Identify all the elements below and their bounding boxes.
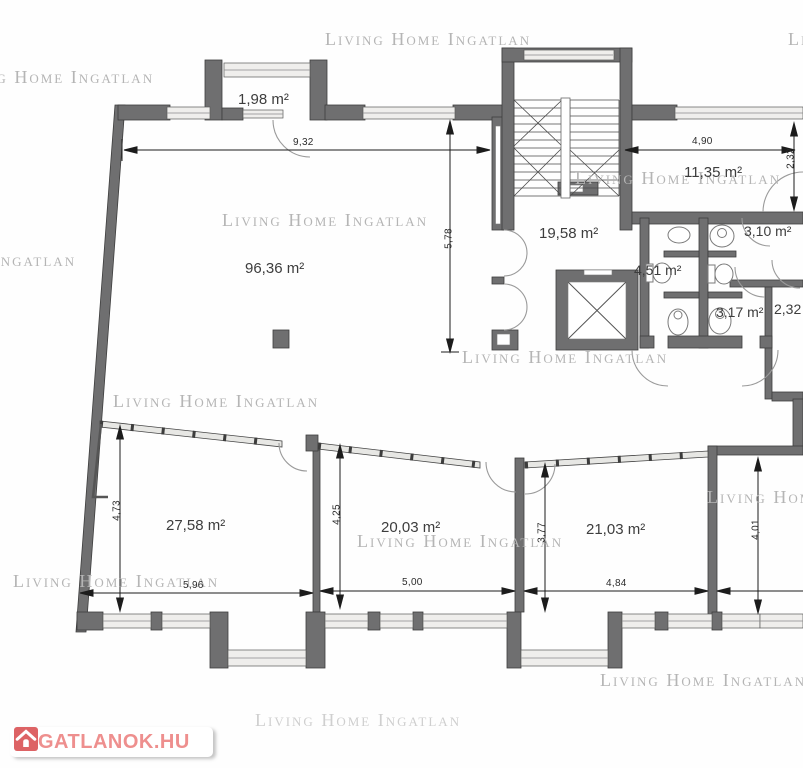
dimension-label-484: 4,84 [606, 578, 627, 589]
watermark: Living Home Ingatlan [0, 67, 154, 88]
bay2-wall-left [507, 612, 521, 668]
watermark: Living Home Ingatlan [462, 347, 668, 368]
column [273, 330, 289, 348]
elevator-door [584, 270, 612, 275]
door-arc-corridor-2 [742, 350, 778, 386]
room-label-room2103: 21,03 m² [586, 521, 645, 538]
room-label-living: 96,36 m² [245, 260, 304, 277]
room-label-hall: 19,58 m² [539, 225, 598, 242]
room-label-room2758: 27,58 m² [166, 517, 225, 534]
dimension-label-596: 5,96 [183, 580, 204, 591]
room-label-wc317: 3,17 m² [716, 304, 763, 320]
bay2-wall-right [608, 612, 622, 668]
floorplan-canvas: Living Home Ingatlan Living Home Ingatla… [0, 0, 803, 768]
watermark: Living Home Ingatlan [255, 710, 461, 731]
room-label-room1135: 11,35 m² [684, 164, 742, 181]
toilet-icon [715, 264, 733, 284]
watermark: Living Home Ingatlan [707, 487, 803, 508]
watermark: Living Home Ingatlan [0, 250, 76, 271]
glass-partitions [93, 421, 708, 497]
balcony-wall-right [310, 60, 327, 120]
room-label-bath451: 4,51 m² [634, 262, 681, 278]
toilet-icon [668, 227, 690, 243]
watermark: Living Home Ingatlan [325, 29, 531, 50]
bay1-wall-left [210, 612, 228, 668]
toilet-icon [718, 229, 727, 238]
logo: INGATLANOK.HU [10, 727, 213, 757]
room-label-wc310: 3,10 m² [744, 223, 791, 239]
stair-handrail [561, 98, 570, 198]
stairwell-wall-right [620, 48, 632, 230]
dimension-label-232: 2,32 [786, 144, 797, 174]
dimension-label-932: 9,32 [293, 137, 314, 148]
watermark: Living Home Ingatlan [788, 29, 803, 50]
bay1-wall-right [306, 612, 325, 668]
watermark: Living Home Ingatlan [575, 168, 781, 189]
watermark: Living Home Ingatlan [222, 210, 428, 231]
door-arc-room2103 [525, 464, 555, 494]
watermark: Living Home Ingatlan [113, 391, 319, 412]
watermark: Living Home Ingatlan [600, 670, 803, 691]
logo-text: INGATLANOK.HU [17, 731, 190, 754]
dimension-label-377: 3,77 [537, 518, 548, 548]
dimension-label-490: 4,90 [692, 136, 713, 147]
house-icon [14, 727, 38, 751]
door-arc-hall-1 [504, 230, 527, 276]
dimension-label-401: 4,01 [751, 515, 762, 545]
door-arc-hall-2 [504, 284, 527, 330]
room-label-room232: 2,32 [774, 301, 801, 317]
toilet-icon [708, 265, 715, 283]
room-label-balcony: 1,98 m² [238, 91, 289, 108]
door-arc-room2758 [279, 443, 307, 471]
stairwell-wall-left [502, 48, 514, 230]
wall-left-slant [76, 105, 125, 632]
dimension-label-425: 4,25 [332, 500, 343, 530]
dimension-label-578: 5,78 [444, 224, 455, 254]
dimension-label-500: 5,00 [402, 577, 423, 588]
toilet-icon [674, 311, 682, 319]
floorplan-drawing [0, 0, 803, 768]
dimension-label-473: 4,73 [112, 496, 123, 526]
door-arc-room2003 [486, 462, 516, 492]
room-label-room2003: 20,03 m² [381, 519, 440, 536]
